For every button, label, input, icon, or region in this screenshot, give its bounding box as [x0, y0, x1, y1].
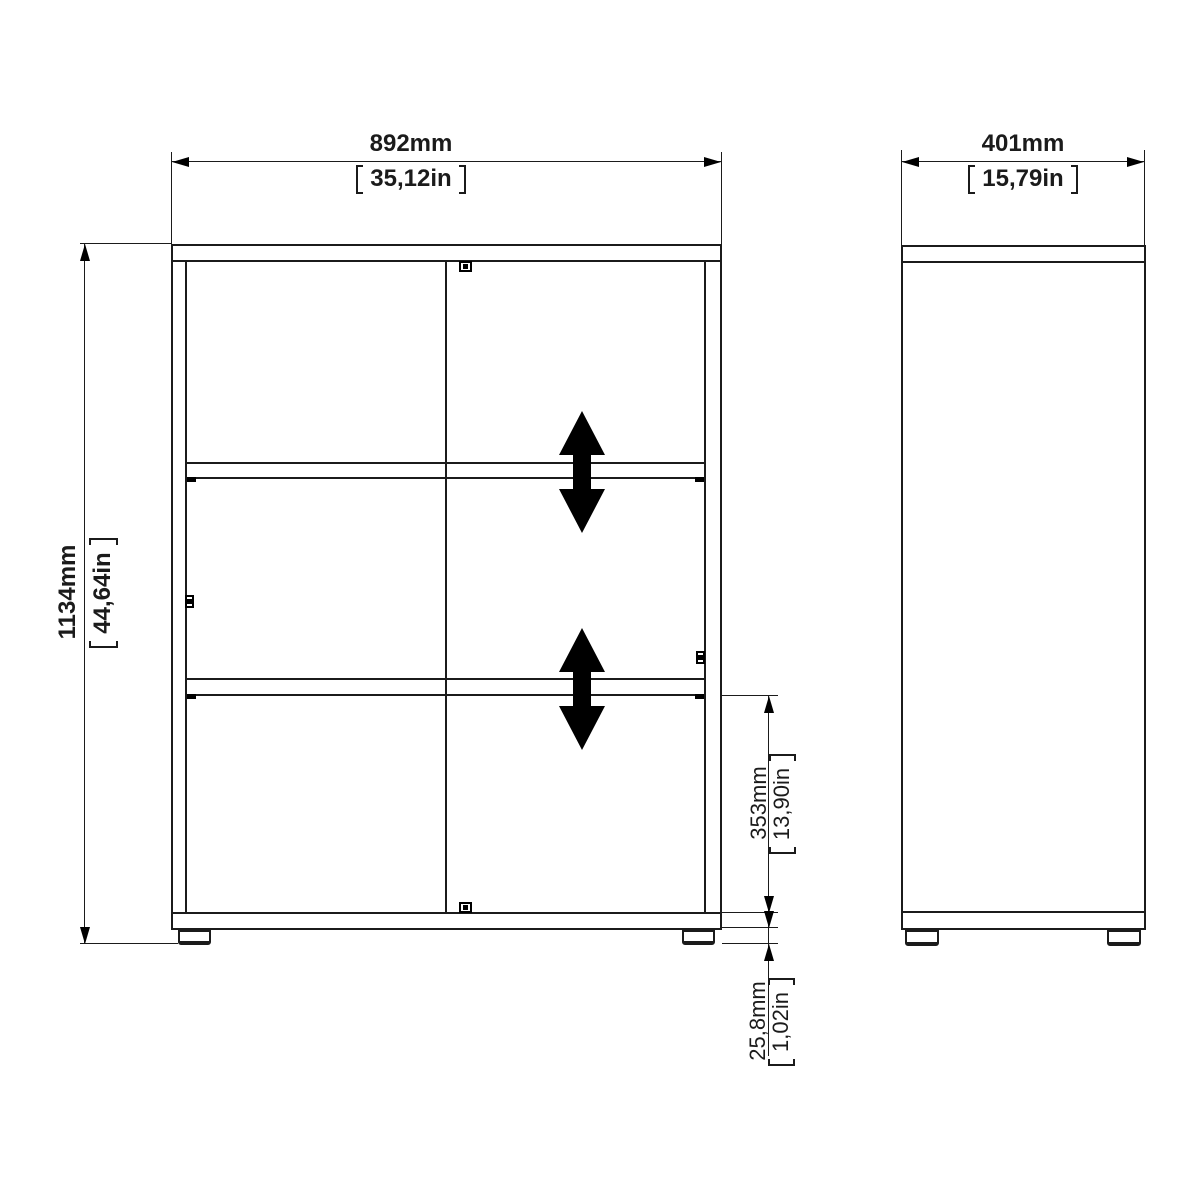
- side-top-panel-line: [901, 261, 1146, 263]
- overall-height-inch-label: 44,64in: [87, 443, 119, 743]
- overall-depth-inch-value: 15,79in: [975, 165, 1070, 194]
- side-carcass-outline: [901, 245, 1146, 930]
- technical-drawing-canvas: 892mm 35,12in 401mm 15,79in 1134mm 44,64…: [0, 0, 1200, 1200]
- side-rear-foot: [1107, 930, 1141, 946]
- overall-height-inch-value: 44,64in: [89, 545, 118, 640]
- extension-line: [80, 243, 171, 244]
- overall-width-inch-value: 35,12in: [363, 165, 458, 194]
- dimension-arrowhead: [172, 157, 189, 167]
- dimension-line: [172, 161, 721, 162]
- dimension-arrowhead: [80, 244, 90, 261]
- dimension-line: [902, 161, 1144, 162]
- front-left-foot: [178, 930, 211, 945]
- dimension-arrowhead: [704, 157, 721, 167]
- adjustable-shelf-arrow-icon: [558, 628, 606, 750]
- extension-line: [721, 152, 722, 244]
- cam-lock-icon: [459, 261, 472, 272]
- bottom-section-inch-value: 13,90in: [769, 761, 796, 847]
- dimension-line: [84, 244, 85, 944]
- side-bottom-panel-line: [901, 911, 1146, 913]
- shelf-pin-icon: [187, 477, 196, 482]
- adjustable-shelf-arrow-icon: [558, 411, 606, 533]
- overall-depth-mm-label: 401mm: [873, 131, 1173, 157]
- cam-lock-icon: [696, 651, 705, 664]
- overall-depth-inch-label: 15,79in: [873, 165, 1173, 194]
- cam-lock-icon: [459, 902, 472, 913]
- overall-width-inch-label: 35,12in: [261, 165, 561, 194]
- front-bottom-panel-line: [171, 912, 722, 914]
- dimension-arrowhead: [80, 927, 90, 944]
- shelf-pin-icon: [695, 694, 704, 699]
- overall-height-mm-label: 1134mm: [55, 442, 81, 742]
- overall-width-mm-label: 892mm: [261, 131, 561, 157]
- front-center-divider-line: [445, 262, 447, 912]
- foot-height-inch-value: 1,02in: [768, 985, 795, 1059]
- extension-line: [80, 943, 178, 944]
- front-right-foot: [682, 930, 715, 945]
- cam-lock-icon: [185, 595, 194, 608]
- foot-height-inch-label: 1,02in: [766, 902, 796, 1142]
- front-left-side-inner-line: [185, 262, 187, 912]
- front-right-side-inner-line: [704, 262, 706, 912]
- side-front-foot: [905, 930, 939, 946]
- bottom-section-inch-label: 13,90in: [767, 684, 797, 924]
- front-upper-shelf: [187, 462, 704, 479]
- shelf-pin-icon: [695, 477, 704, 482]
- shelf-pin-icon: [187, 694, 196, 699]
- front-lower-shelf: [187, 678, 704, 696]
